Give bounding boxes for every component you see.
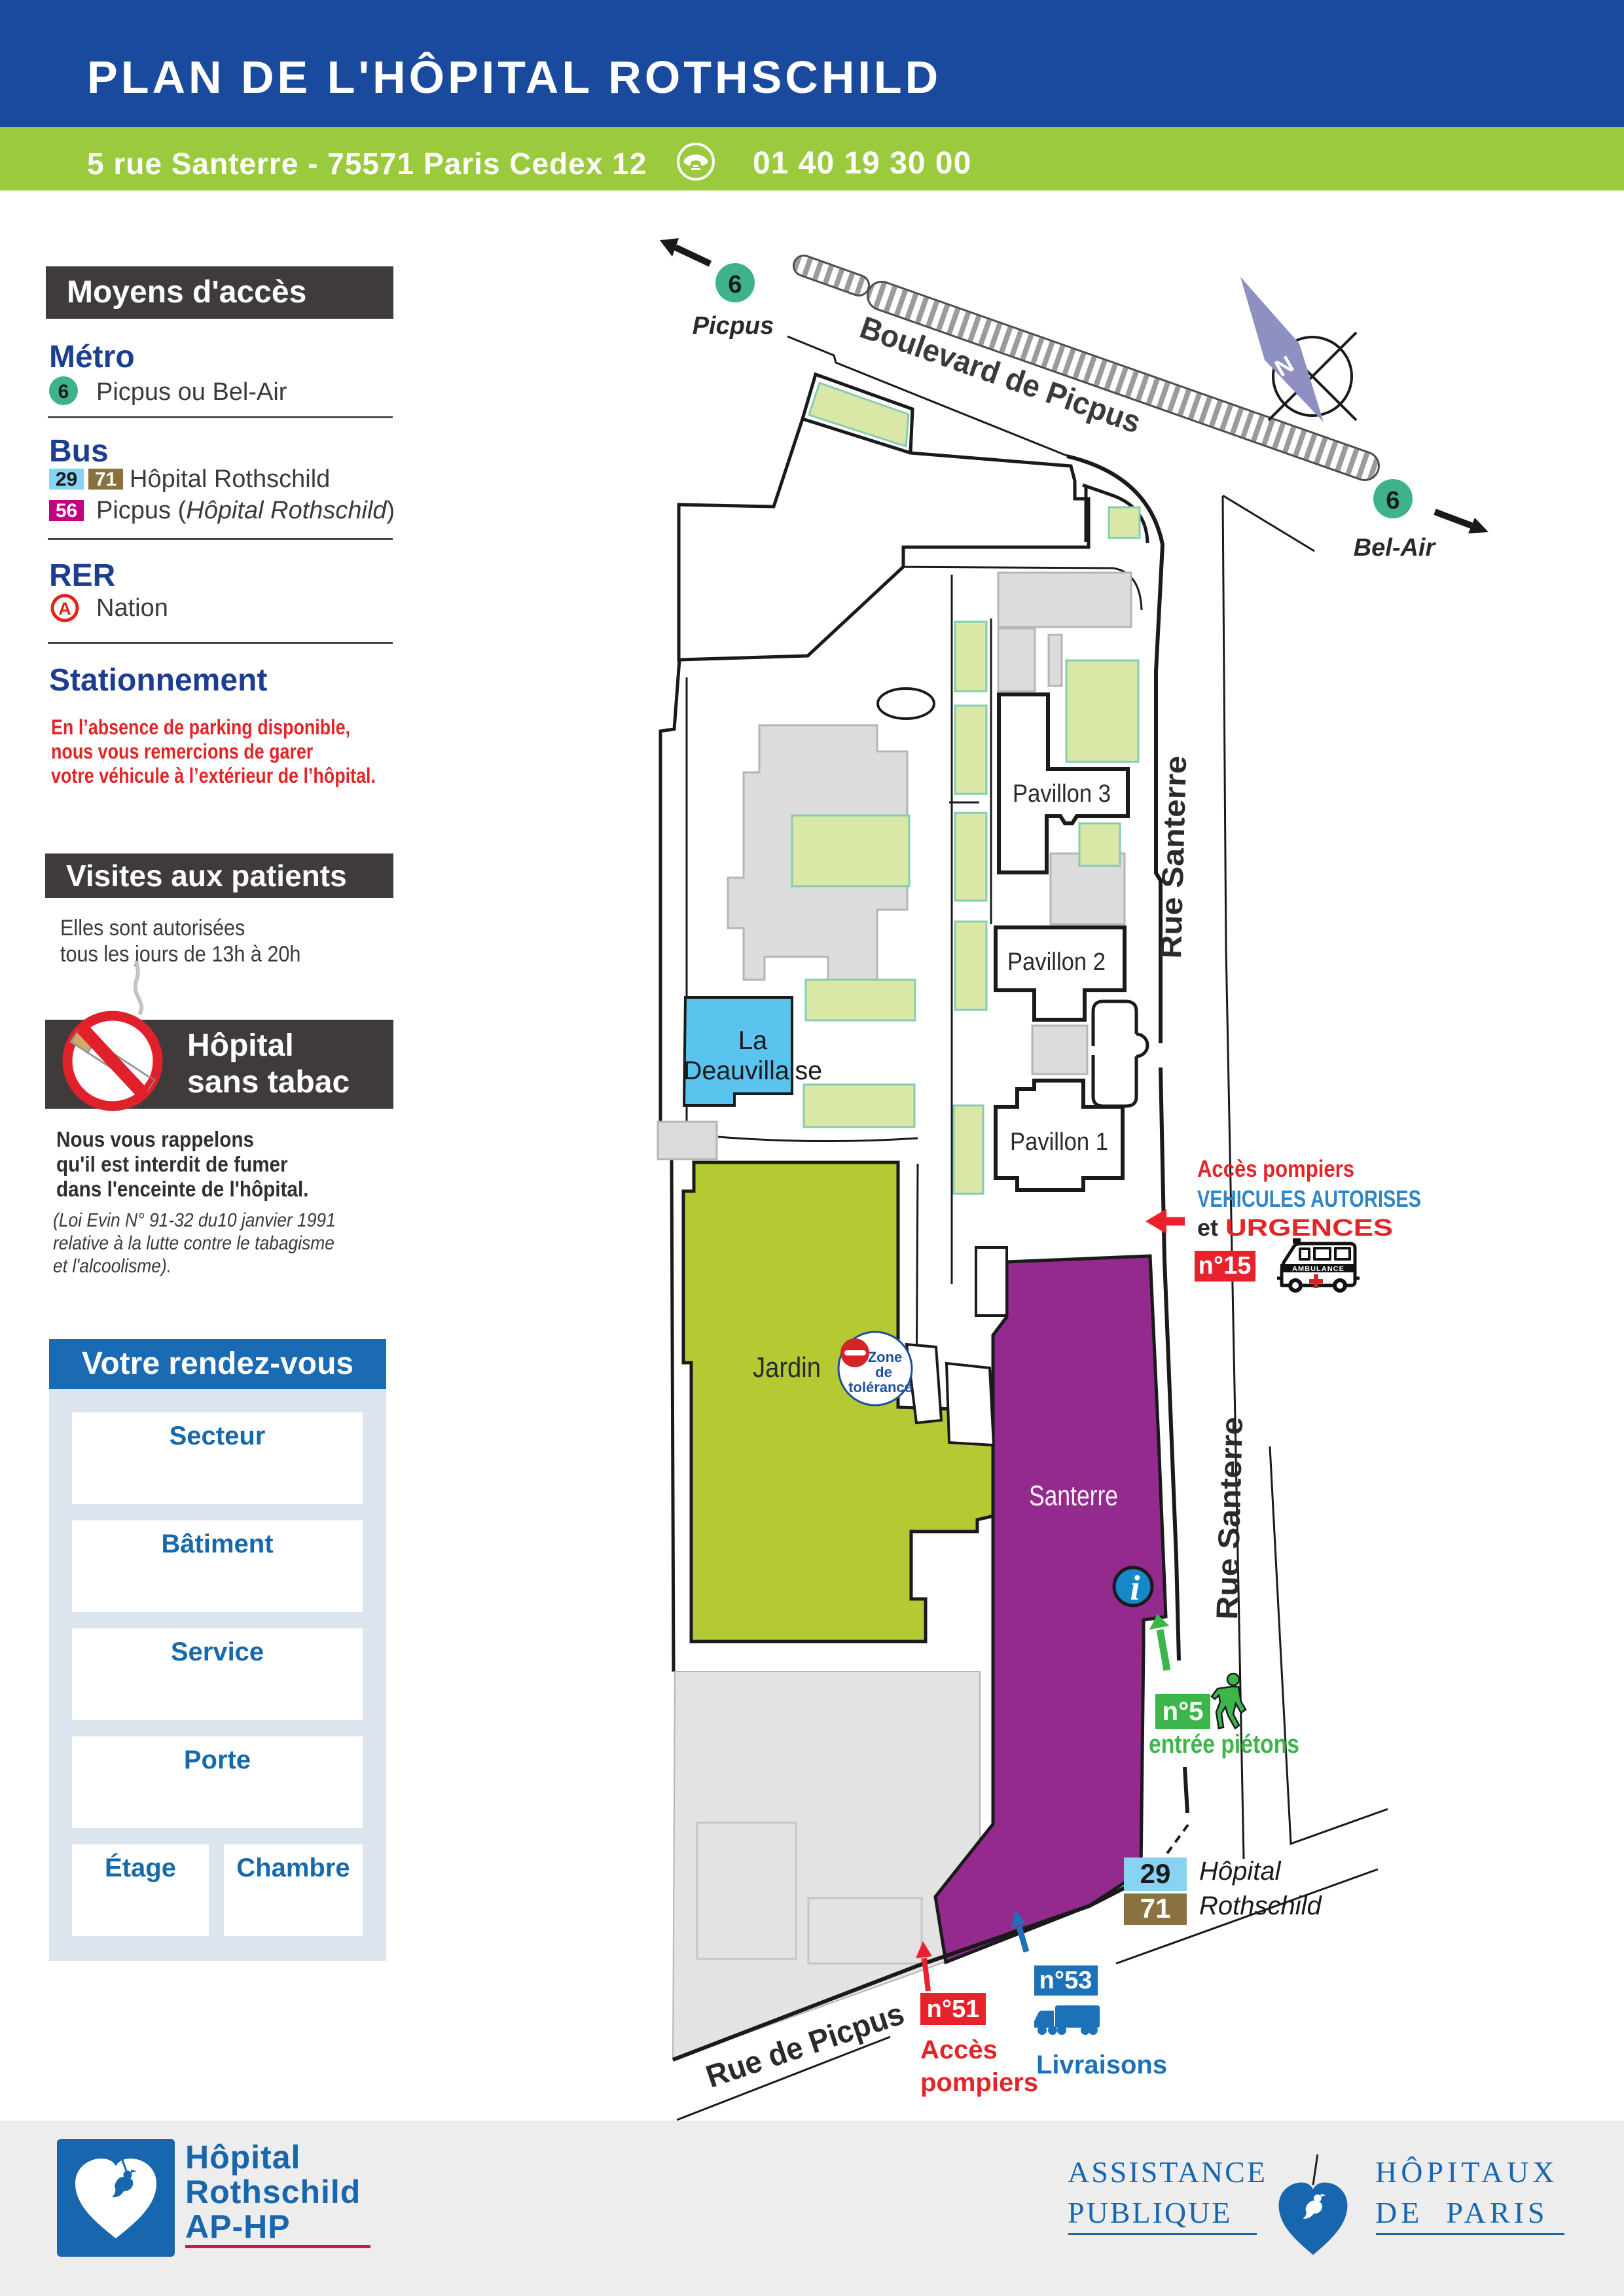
svg-text:Jardin: Jardin (753, 1352, 821, 1384)
svg-text:Accès pompiers: Accès pompiers (1197, 1155, 1354, 1182)
svg-text:Livraisons: Livraisons (1036, 2051, 1167, 2079)
svg-text:Pavillon 3: Pavillon 3 (1013, 780, 1111, 808)
svg-text:URGENCES: URGENCES (1225, 1214, 1393, 1241)
svg-text:entrée piétons: entrée piétons (1149, 1730, 1299, 1759)
svg-text:de: de (875, 1364, 892, 1380)
svg-text:La: La (738, 1026, 768, 1055)
svg-text:n°5: n°5 (1163, 1697, 1204, 1726)
svg-text:Deauvillaise: Deauvillaise (683, 1056, 822, 1085)
svg-text:n°53: n°53 (1039, 1967, 1092, 1994)
svg-text:Bel-Air: Bel-Air (1354, 534, 1437, 562)
svg-text:Zone: Zone (868, 1349, 903, 1365)
svg-text:Rue Santerre: Rue Santerre (1153, 755, 1193, 959)
svg-text:Pavillon 2: Pavillon 2 (1007, 948, 1106, 976)
svg-text:et: et (1197, 1214, 1218, 1241)
svg-text:Hôpital: Hôpital (1199, 1857, 1282, 1886)
svg-text:71: 71 (1140, 1893, 1171, 1924)
svg-text:Rothschild: Rothschild (1199, 1892, 1323, 1920)
svg-text:Pavillon 1: Pavillon 1 (1010, 1128, 1108, 1156)
svg-text:6: 6 (728, 271, 742, 298)
svg-text:AMBULANCE: AMBULANCE (1292, 1265, 1344, 1273)
svg-text:6: 6 (1386, 487, 1399, 514)
svg-text:i: i (1130, 1568, 1140, 1607)
svg-text:pompiers: pompiers (920, 2068, 1038, 2097)
svg-text:Picpus: Picpus (693, 312, 774, 340)
svg-text:Santerre: Santerre (1029, 1480, 1118, 1512)
svg-text:Accès: Accès (920, 2036, 998, 2064)
svg-text:tolérance: tolérance (848, 1379, 912, 1395)
svg-text:29: 29 (1140, 1858, 1171, 1889)
svg-text:n°51: n°51 (927, 1996, 980, 2023)
svg-text:Rue Santerre: Rue Santerre (1210, 1416, 1249, 1620)
svg-text:VEHICULES AUTORISES: VEHICULES AUTORISES (1197, 1185, 1421, 1212)
svg-text:n°15: n°15 (1199, 1252, 1252, 1280)
